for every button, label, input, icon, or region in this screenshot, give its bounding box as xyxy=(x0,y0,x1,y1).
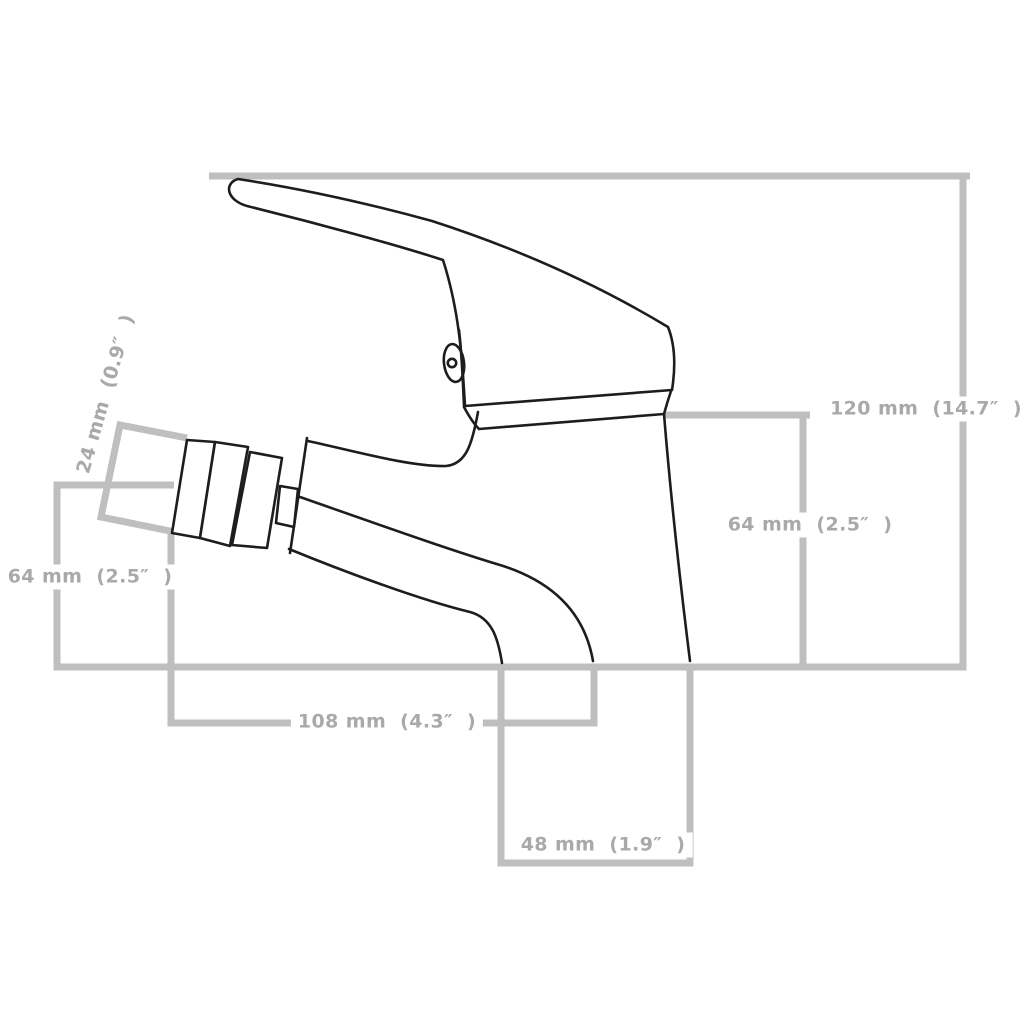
spout-underside-outer xyxy=(289,549,502,663)
dim-label-spout-height: 64 mm (2.5″ ) xyxy=(1,565,180,590)
spout-top-edge xyxy=(308,412,478,466)
faucet-outline xyxy=(172,179,690,663)
dim-label-overall-depth: 108 mm (4.3″ ) xyxy=(291,710,483,735)
body-right-edge xyxy=(664,414,690,661)
dim-label-total-height: 120 mm (14.7″ ) xyxy=(823,397,1024,422)
pivot-screw-icon xyxy=(448,359,456,367)
cap-seam-line xyxy=(479,414,664,429)
dim-label-body-height: 64 mm (2.5″ ) xyxy=(721,513,900,538)
spout-underside-inner xyxy=(300,497,593,661)
cap-right-edge xyxy=(664,391,671,414)
dim-label-base-width: 48 mm (1.9″ ) xyxy=(514,833,693,858)
nozzle-connector xyxy=(276,486,298,527)
dimension-diagram: 120 mm (14.7″ ) 64 mm (2.5″ ) 64 mm (2.5… xyxy=(0,0,1024,1024)
